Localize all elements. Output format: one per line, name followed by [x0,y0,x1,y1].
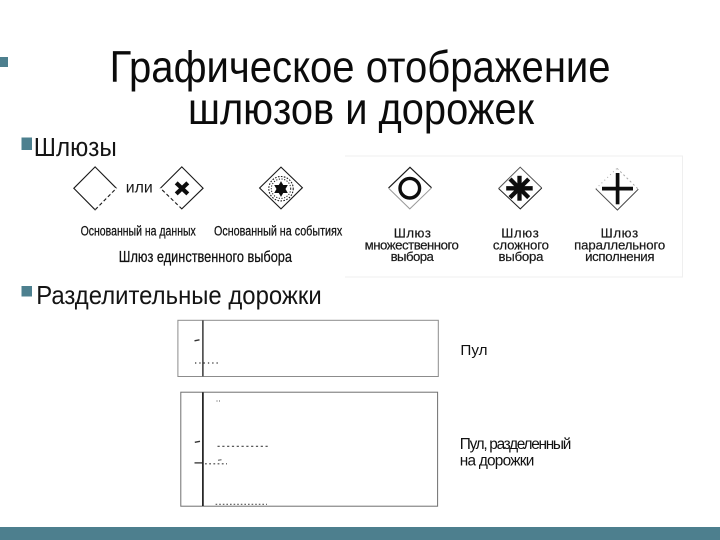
svg-text:на дорожки: на дорожки [460,453,535,470]
svg-text:выбора: выбора [499,249,545,264]
svg-text:Пул: Пул [460,342,487,359]
svg-text:Шлюз единственного выбора: Шлюз единственного выбора [119,249,292,266]
svg-text:или: или [126,180,153,197]
svg-text:Основанный на событиях: Основанный на событиях [214,223,342,238]
svg-text:шлюзов и дорожек: шлюзов и дорожек [188,84,534,134]
svg-text:исполнения: исполнения [585,249,654,264]
svg-text:Разделительные дорожки: Разделительные дорожки [36,280,322,310]
svg-text:выбора: выбора [391,249,435,264]
svg-text:Шлюзы: Шлюзы [34,132,117,162]
svg-text:Пул, разделенный: Пул, разделенный [460,436,572,453]
svg-text:Основанный на данных: Основанный на данных [81,223,196,238]
